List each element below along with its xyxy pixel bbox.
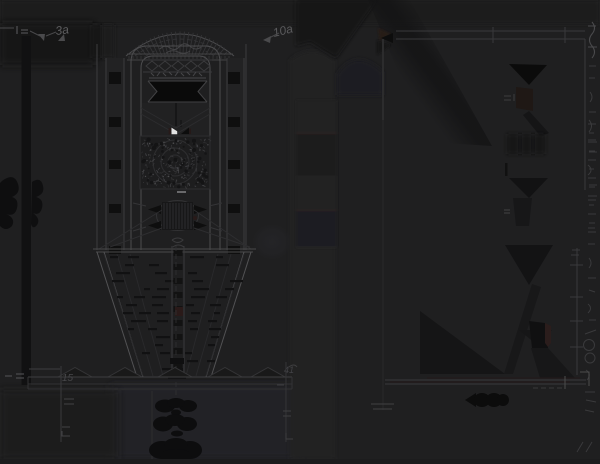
svg-text:3a: 3a [54, 22, 69, 38]
svg-text:15: 15 [62, 373, 74, 384]
